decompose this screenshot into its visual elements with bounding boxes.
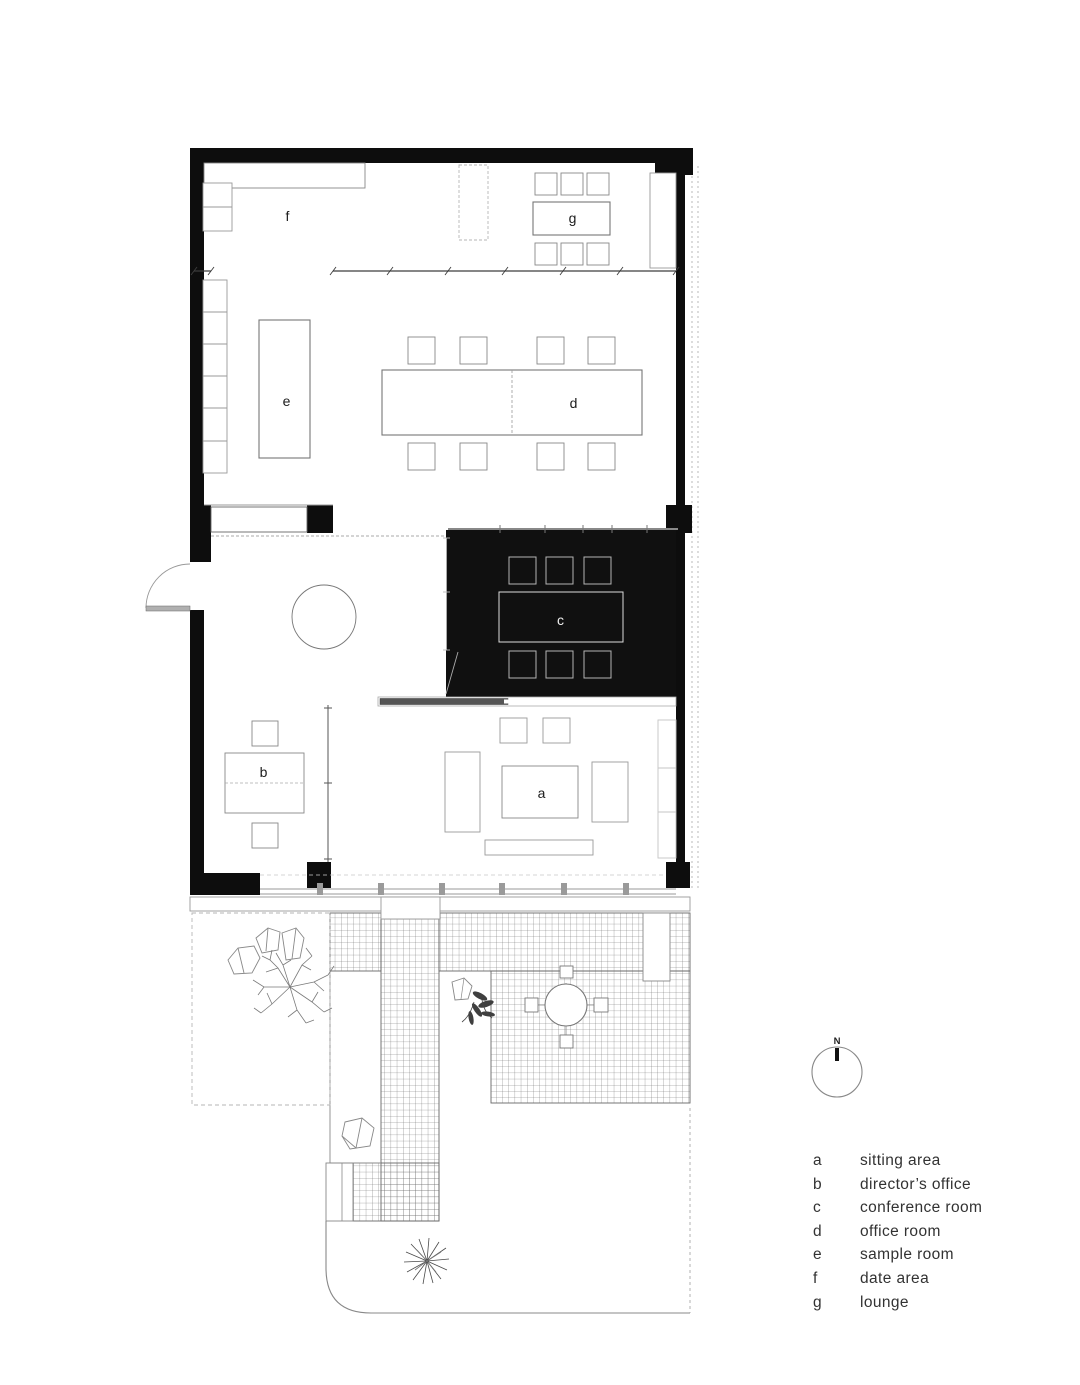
paved-terrace [326, 913, 690, 1313]
legend-item-c: c conference room [813, 1196, 1073, 1220]
shelf-upper [203, 183, 232, 231]
legend-label: sitting area [860, 1149, 1073, 1173]
room-label-d: d [570, 395, 579, 411]
legend-label: office room [860, 1220, 1073, 1244]
armchair [592, 762, 628, 822]
floor-plan-page: N f g e d c b a a sitting area b directo… [0, 0, 1080, 1385]
north-compass: N [812, 1036, 862, 1097]
legend-key: a [813, 1149, 860, 1173]
entry-step [381, 897, 440, 919]
room-label-c: c [557, 612, 565, 628]
legend-label: lounge [860, 1291, 1073, 1315]
palm-icon [404, 1238, 449, 1284]
tv-console [485, 840, 593, 855]
legend-item-b: b director’s office [813, 1173, 1073, 1197]
legend-key: f [813, 1267, 860, 1291]
legend-key: c [813, 1196, 860, 1220]
legend-item-d: d office room [813, 1220, 1073, 1244]
rock-single [342, 1118, 374, 1149]
room-label-a: a [538, 785, 547, 801]
room-label-f: f [286, 208, 291, 224]
wall-cabinet [650, 173, 676, 268]
sample-table [259, 320, 310, 458]
legend: a sitting area b director’s office c con… [813, 1149, 1073, 1314]
legend-item-a: a sitting area [813, 1149, 1073, 1173]
room-g-furniture [533, 173, 676, 268]
legend-label: date area [860, 1267, 1073, 1291]
room-c-conference [443, 525, 678, 697]
hall-round-table [292, 585, 356, 649]
legend-item-f: f date area [813, 1267, 1073, 1291]
rock-cluster [228, 928, 304, 974]
entrance-door [146, 564, 190, 611]
legend-item-g: g lounge [813, 1291, 1073, 1315]
legend-key: d [813, 1220, 860, 1244]
legend-key: e [813, 1243, 860, 1267]
legend-label: conference room [860, 1196, 1073, 1220]
terrace-bench-2 [326, 1163, 353, 1221]
legend-label: sample room [860, 1243, 1073, 1267]
wall-opening [211, 507, 307, 532]
legend-item-e: e sample room [813, 1243, 1073, 1267]
legend-key: g [813, 1291, 860, 1315]
room-label-e: e [283, 393, 292, 409]
wall-shelf [658, 720, 676, 858]
sliding-door [378, 697, 676, 706]
legend-key: b [813, 1173, 860, 1197]
plant-icon [452, 978, 495, 1025]
room-label-b: b [260, 764, 269, 780]
site-boundary [326, 1221, 690, 1313]
shelf-lower [203, 280, 227, 473]
sofa [445, 752, 480, 832]
north-label: N [834, 1036, 841, 1047]
room-label-g: g [569, 210, 578, 226]
terrace-bench [643, 913, 670, 981]
legend-label: director’s office [860, 1173, 1073, 1197]
